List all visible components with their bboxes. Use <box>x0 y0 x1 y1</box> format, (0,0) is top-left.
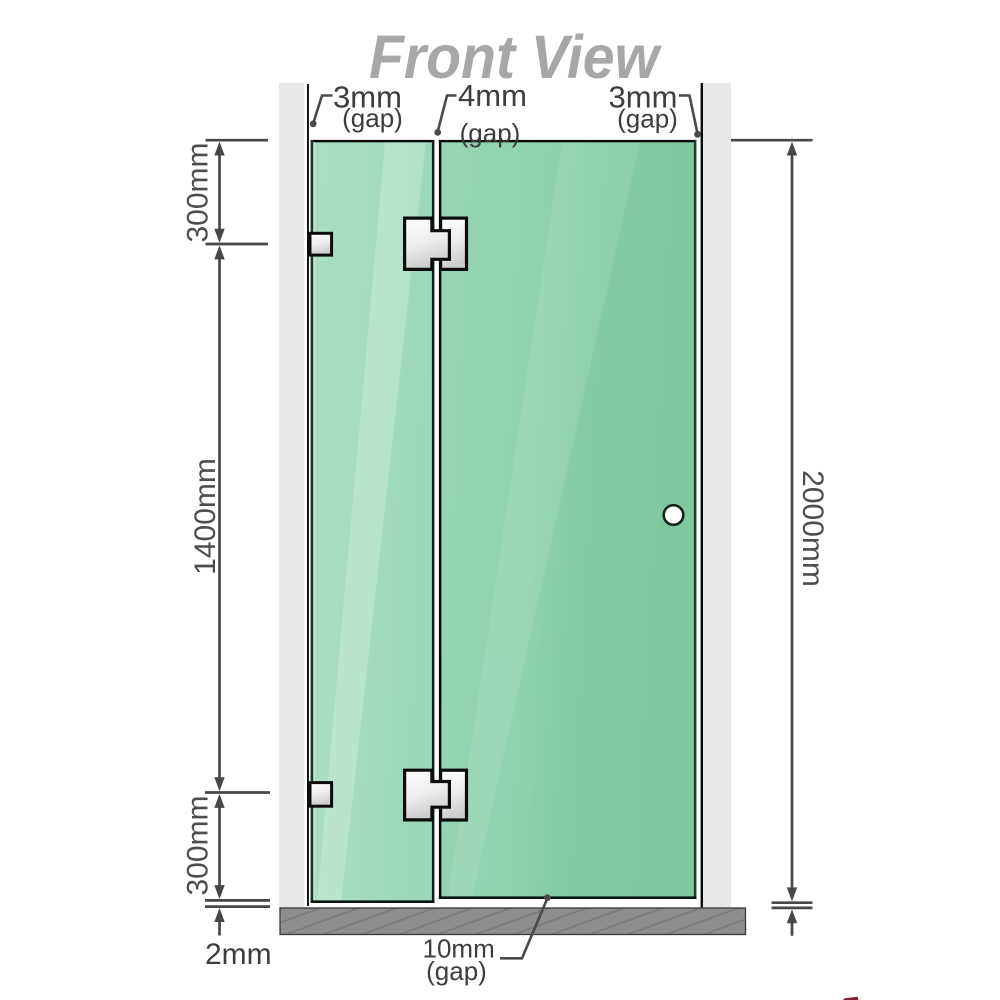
svg-text:2mm: 2mm <box>205 938 272 971</box>
svg-text:4mm: 4mm <box>458 78 527 113</box>
svg-text:1400mm: 1400mm <box>189 458 222 575</box>
svg-text:(gap): (gap) <box>342 103 403 133</box>
svg-text:300mm: 300mm <box>182 142 215 242</box>
svg-text:2000mm: 2000mm <box>796 470 829 587</box>
svg-text:300mm: 300mm <box>182 795 215 895</box>
svg-text:(gap): (gap) <box>460 118 521 148</box>
svg-text:(gap): (gap) <box>617 104 678 134</box>
svg-text:(gap): (gap) <box>426 956 487 986</box>
